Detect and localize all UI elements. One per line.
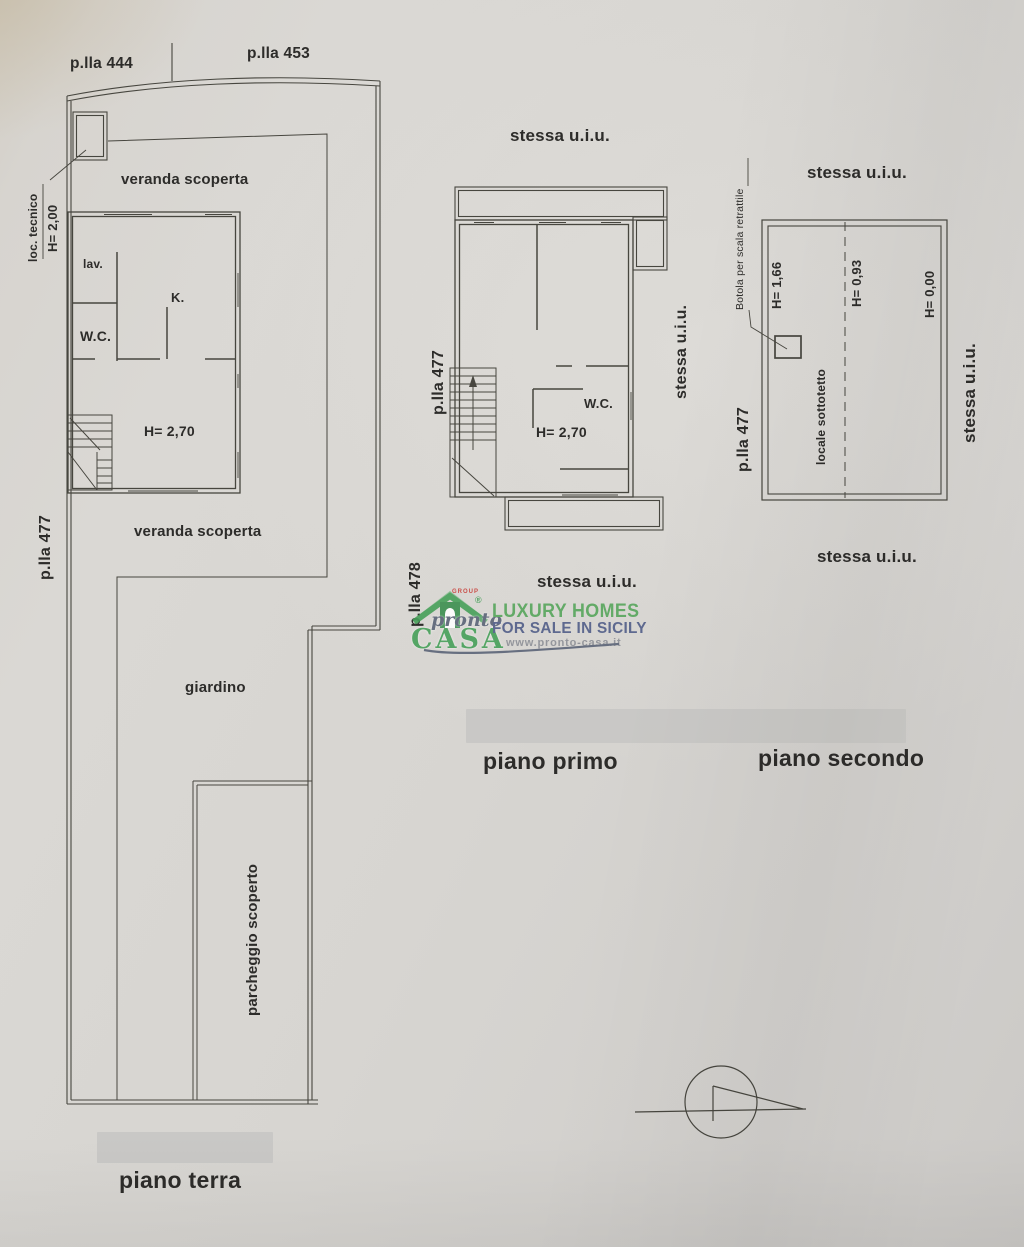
parcel-label-477-first: p.lla 477 (431, 350, 448, 415)
same-unit-bottom-second: stessa u.i.u. (817, 548, 917, 566)
ground-floor-plan (43, 43, 380, 1104)
height-label-ground: H= 2,70 (144, 424, 195, 439)
second-floor-plan (748, 158, 947, 500)
ground-openings (104, 215, 238, 492)
first-floor-plan (450, 187, 667, 530)
loc-tecnico-height: H= 2,00 (46, 205, 60, 252)
loc-tecnico-label: loc. tecnico (27, 194, 40, 262)
garden-label: giardino (185, 680, 246, 696)
room-lav-label: lav. (83, 258, 103, 271)
redaction-bar (466, 709, 906, 743)
parcel-label-477-second: p.lla 477 (736, 407, 753, 472)
parcel-label-444: p.lla 444 (70, 56, 133, 72)
parking-label: parcheggio scoperto (245, 864, 261, 1016)
ground-floor-title: piano terra (119, 1168, 241, 1192)
first-floor-title: piano primo (483, 749, 618, 773)
attic-hatch-square (775, 336, 801, 358)
logo-tagline-2: FOR SALE IN SICILY (492, 620, 647, 638)
north-arrow-compass (635, 1066, 806, 1138)
first-openings (474, 223, 631, 496)
same-unit-top-second: stessa u.i.u. (807, 164, 907, 182)
floor-plan-sheet: p.lla 444 p.lla 453 loc. tecnico H= 2,00… (0, 0, 1024, 1247)
parcel-label-477-ground: p.lla 477 (38, 515, 55, 580)
parcel-label-453: p.lla 453 (247, 46, 310, 62)
room-wc-label-first: W.C. (584, 397, 613, 411)
height-left-second: H= 1,66 (770, 262, 784, 309)
veranda-top-label: veranda scoperta (121, 172, 248, 188)
redaction-bar (97, 1132, 273, 1163)
second-floor-title: piano secondo (758, 746, 924, 770)
veranda-bottom-label: veranda scoperta (134, 524, 261, 540)
height-label-first: H= 2,70 (536, 425, 587, 440)
same-unit-right-second: stessa u.i.u. (961, 343, 979, 443)
room-kitchen-label: K. (171, 291, 184, 305)
italian-flag-icon (522, 643, 582, 656)
ground-building-walls (68, 212, 240, 493)
pronto-casa-logo: GROUP ® pronto CASA LUXURY HOMES FOR SAL… (405, 580, 627, 664)
attic-hatch-note: Botola per scala retrattile (735, 188, 746, 310)
first-staircase (450, 368, 496, 497)
room-wc-label-ground: W.C. (80, 329, 111, 344)
height-right-second: H= 0,00 (923, 271, 937, 318)
same-unit-top-first: stessa u.i.u. (510, 127, 610, 145)
registered-mark: ® (475, 595, 482, 605)
ground-staircase (68, 415, 112, 490)
height-mid-second: H= 0,93 (850, 260, 864, 307)
same-unit-right-first: stessa u.i.u. (674, 305, 691, 399)
attic-room-label: locale sottotetto (815, 369, 828, 465)
